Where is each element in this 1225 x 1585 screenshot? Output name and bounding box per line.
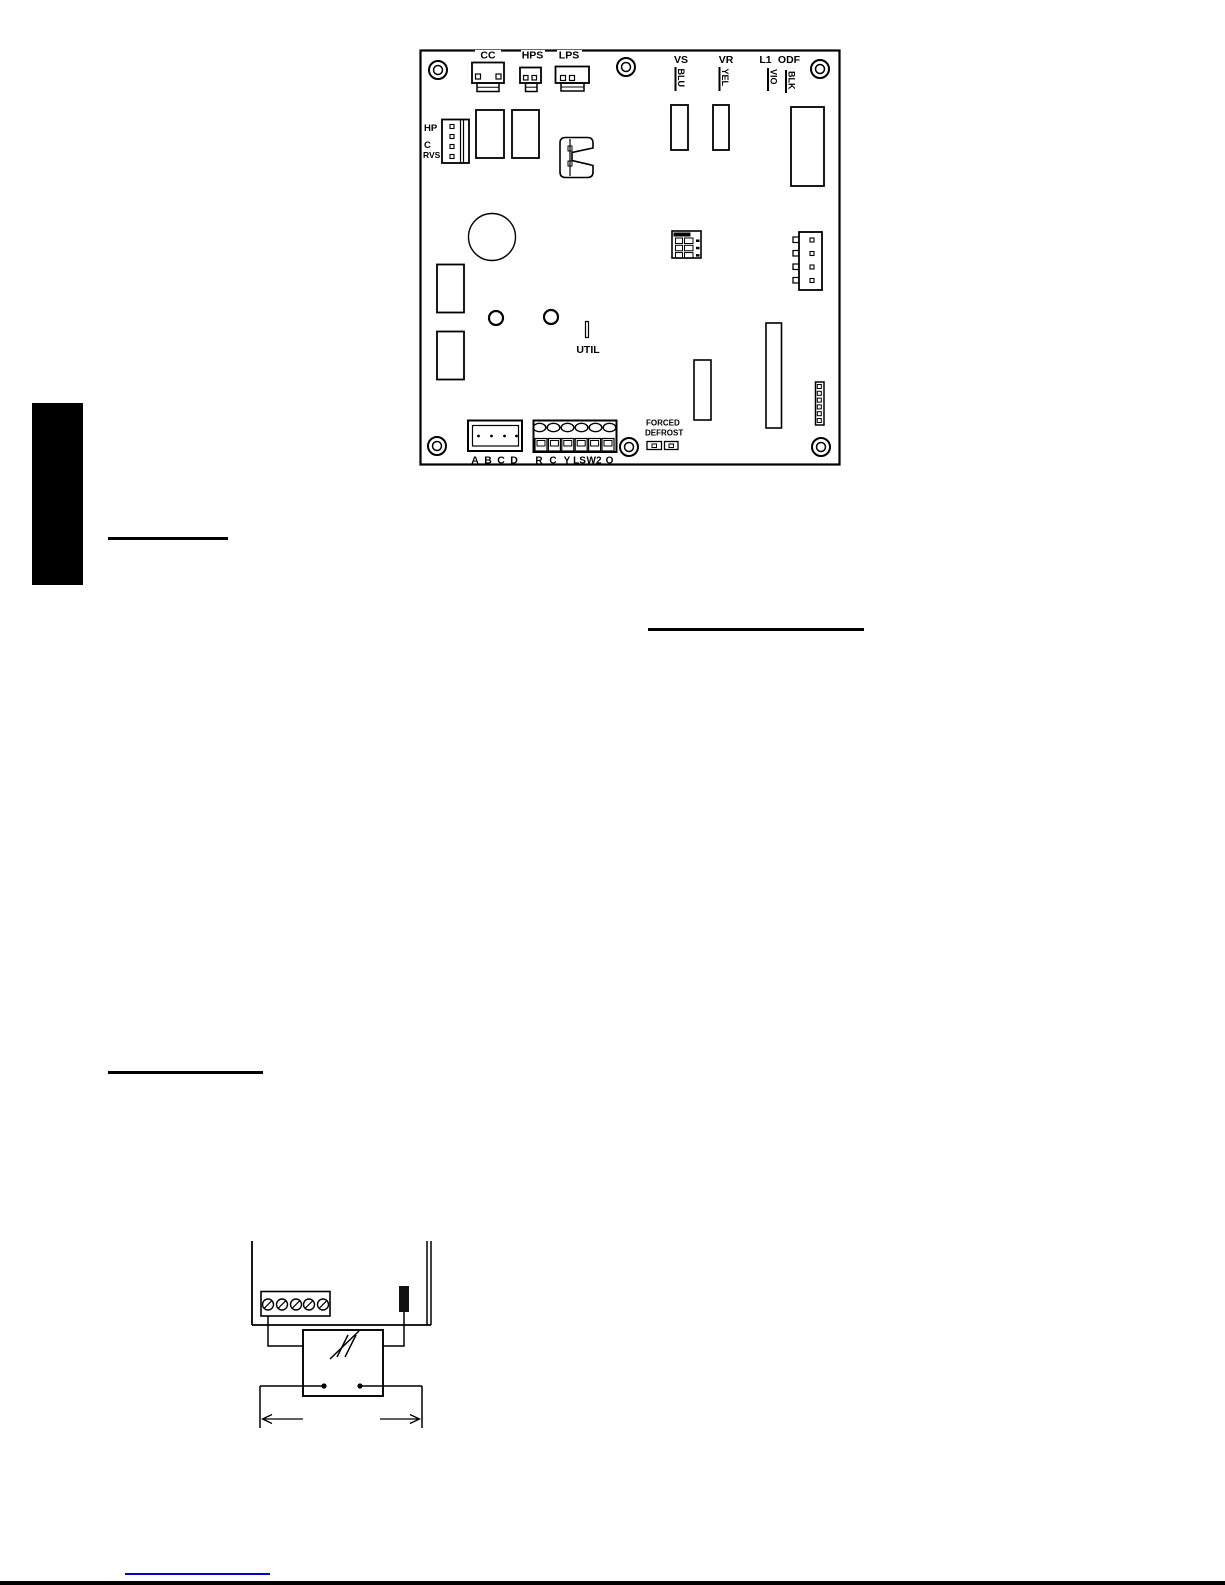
- l1-terminal-label: L1: [759, 54, 771, 66]
- blk-wire-label: BLK: [787, 71, 797, 90]
- forced-defrost-jumper[interactable]: [647, 442, 678, 450]
- small-round-component: [489, 311, 503, 325]
- hps-connector: [520, 68, 541, 92]
- plug-label-d: D: [510, 455, 518, 467]
- vr-component: [713, 105, 729, 150]
- forced-defrost-label-line1: FORCED: [646, 419, 680, 428]
- odf-terminal-label: ODF: [778, 54, 801, 66]
- plug-label-c: C: [497, 455, 505, 467]
- round-component: [469, 214, 516, 261]
- mounting-hole-icon: [428, 58, 830, 456]
- terminal-label-y: Y: [564, 456, 571, 467]
- lps-connector: [556, 67, 590, 92]
- component: [694, 360, 711, 420]
- wire: [383, 1312, 404, 1346]
- small-round-component: [544, 310, 558, 324]
- plug-label-a: A: [471, 455, 479, 467]
- terminal-label-c: C: [549, 456, 556, 467]
- page-bottom-border: [0, 1581, 1225, 1585]
- dimension-arrow-left-icon: [263, 1415, 304, 1424]
- hp-label: HP: [424, 123, 438, 134]
- low-voltage-terminal-strip[interactable]: [533, 421, 616, 453]
- hp-c-rvs-connector: [442, 120, 469, 164]
- lps-connector-label: LPS: [559, 50, 579, 62]
- plug-label-b: B: [484, 455, 492, 467]
- relay-component: [437, 265, 464, 313]
- wire-splice-component: [399, 1286, 409, 1312]
- util-pin-icon: [586, 322, 589, 338]
- vr-terminal-label: VR: [719, 54, 734, 66]
- cc-connector-label: CC: [480, 50, 496, 62]
- dimension-arrow-right-icon: [380, 1415, 420, 1424]
- terminal-label-r: R: [535, 456, 543, 467]
- vio-wire-label: VIO: [769, 69, 779, 85]
- footer-link-underline[interactable]: [125, 1573, 270, 1575]
- blu-wire-label: BLU: [676, 69, 686, 88]
- abcd-plug: [468, 421, 522, 452]
- wire: [268, 1317, 303, 1347]
- rvs-label: RVS: [423, 150, 441, 160]
- board-outline: [421, 51, 840, 465]
- forced-defrost-label-line2: DEFROST: [645, 429, 683, 438]
- fuse-clip-icon: [560, 138, 593, 178]
- heading-rule-3: [108, 1071, 263, 1074]
- manual-page: CC HPS LPS HP C R: [0, 0, 1225, 1585]
- terminal-label-o: O: [606, 456, 614, 467]
- cc-connector: [472, 63, 504, 92]
- screw-terminal-block: [261, 1292, 330, 1317]
- heading-rule-2: [648, 628, 864, 631]
- relay-component: [437, 332, 464, 380]
- heading-rule-1: [108, 537, 228, 540]
- util-label: UTIL: [576, 344, 600, 356]
- four-pin-header: [793, 232, 822, 290]
- terminal-label-ls: LS: [573, 456, 586, 467]
- thermostat-contact-icon: [330, 1331, 359, 1359]
- terminal-label-w2: W2: [587, 456, 602, 467]
- thermostat-wiring-figure: [240, 1225, 440, 1435]
- defrost-board-diagram: CC HPS LPS HP C R: [419, 49, 841, 467]
- hps-connector-label: HPS: [522, 50, 544, 62]
- odf-relay-component: [791, 107, 824, 186]
- six-pin-strip: [816, 382, 825, 425]
- yel-wire-label: YEL: [720, 69, 730, 87]
- vs-terminal-label: VS: [674, 54, 688, 66]
- relay-component: [476, 110, 504, 158]
- section-tab: [32, 403, 83, 585]
- dip-switch[interactable]: [672, 231, 701, 258]
- relay-component: [512, 110, 539, 158]
- component: [766, 323, 782, 428]
- vs-component: [671, 105, 688, 150]
